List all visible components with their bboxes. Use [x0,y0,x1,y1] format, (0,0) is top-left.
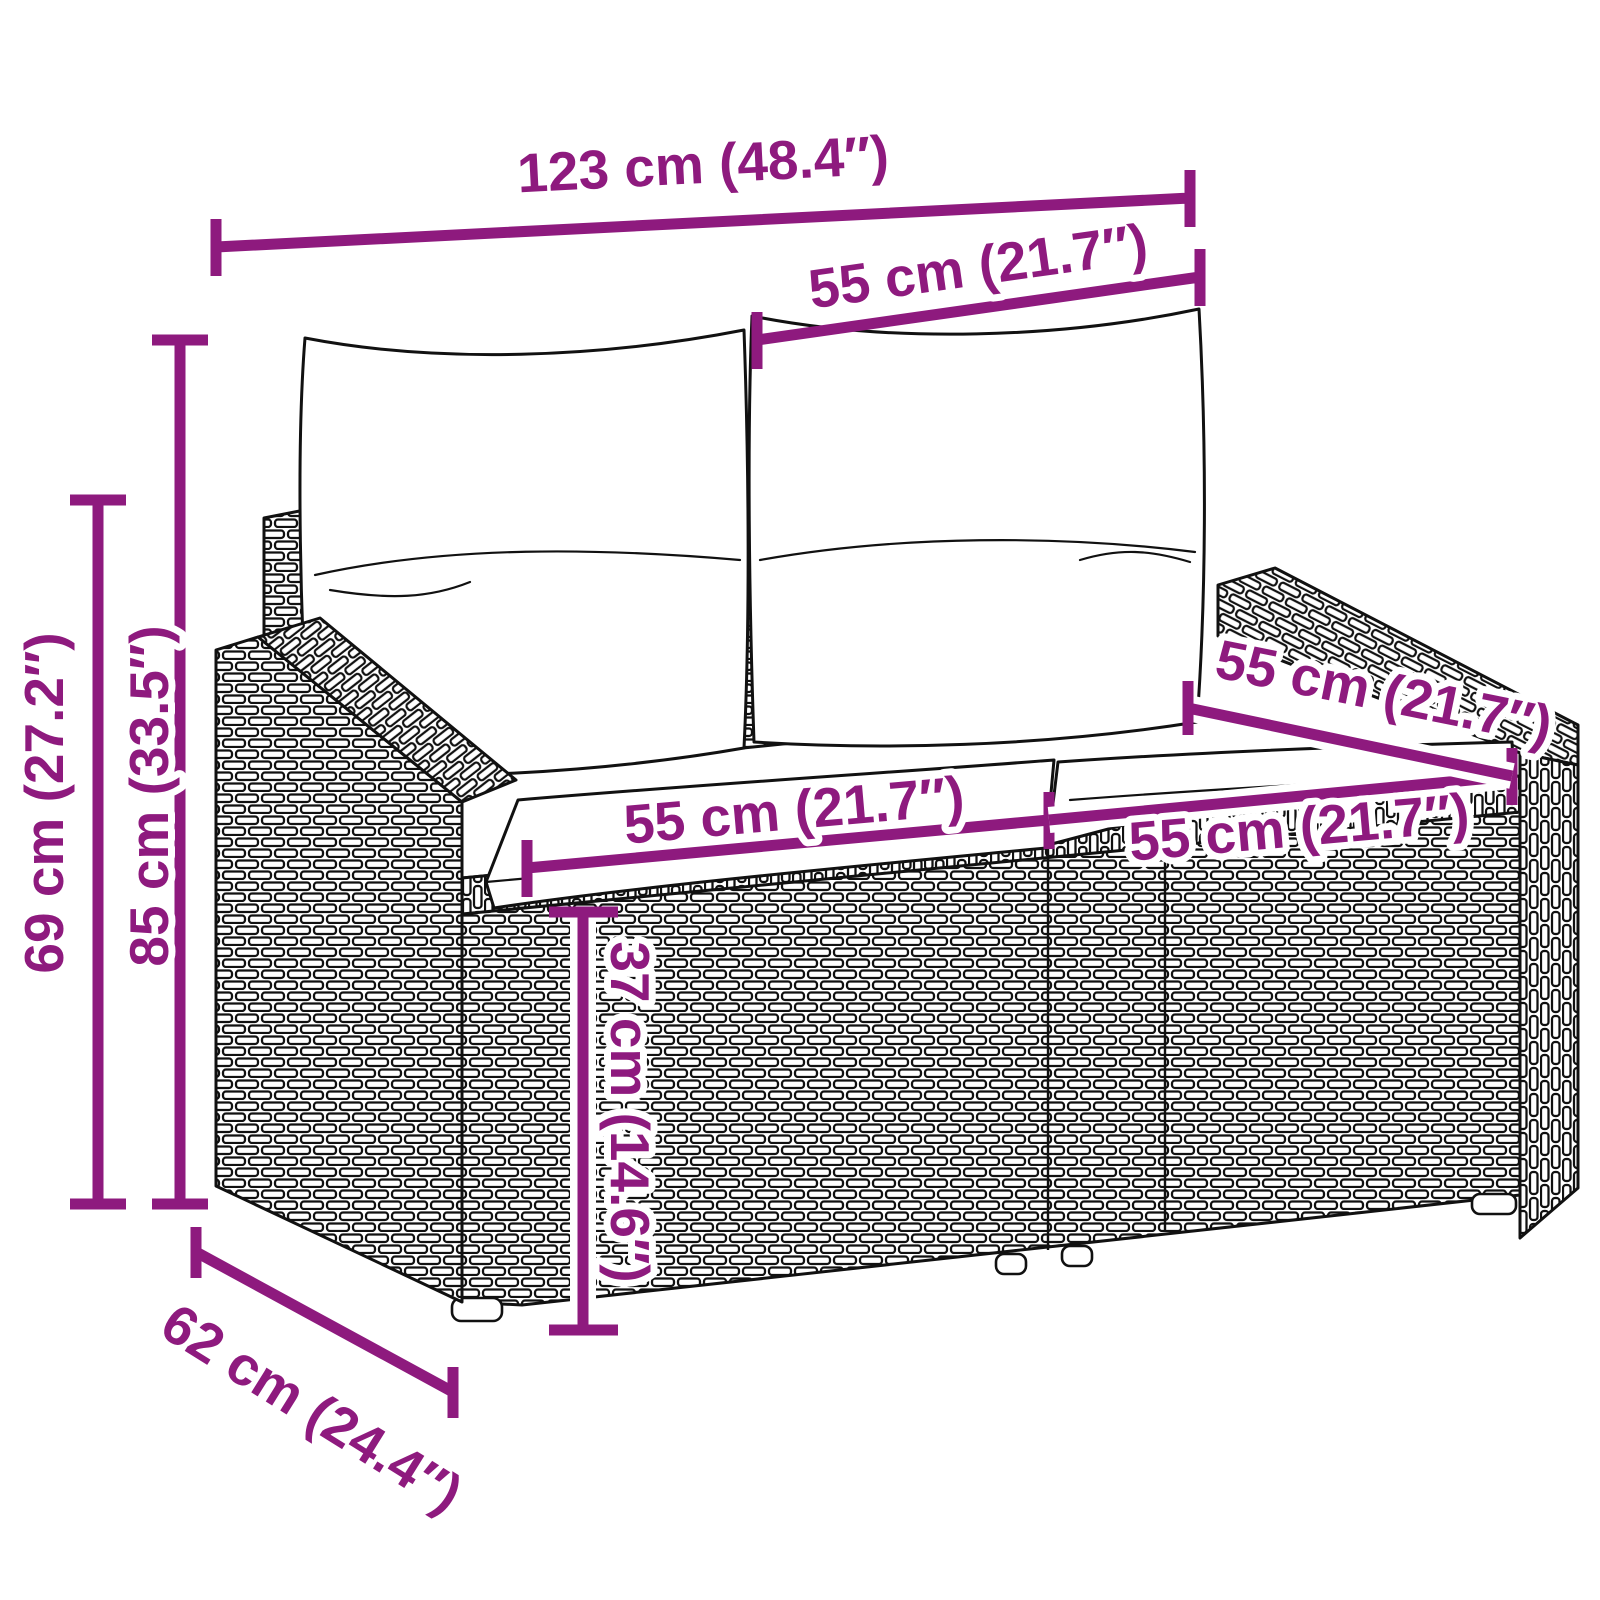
dimension-diagram: 123 cm (48.4″) 55 cm (21.7″) 85 cm (33.5… [0,0,1600,1600]
dim-label: 69 cm (27.2″) [13,632,75,973]
sofa-foot [996,1254,1026,1274]
dim-label: 62 cm (24.4″) [151,1291,473,1524]
dim-overall-height: 85 cm (33.5″) [118,340,208,1204]
sofa-foot [1062,1246,1092,1266]
dim-label: 85 cm (33.5″) [118,625,180,966]
sofa-foot [1472,1194,1516,1214]
dim-frame-height: 69 cm (27.2″) [13,500,126,1204]
dim-label: 37 cm (14.6″) [599,941,661,1282]
dim-label: 123 cm (48.4″) [516,124,891,205]
back-cushion-right [749,309,1204,746]
right-armrest-side [1520,753,1578,1238]
diagram-canvas: 123 cm (48.4″) 55 cm (21.7″) 85 cm (33.5… [0,0,1600,1600]
